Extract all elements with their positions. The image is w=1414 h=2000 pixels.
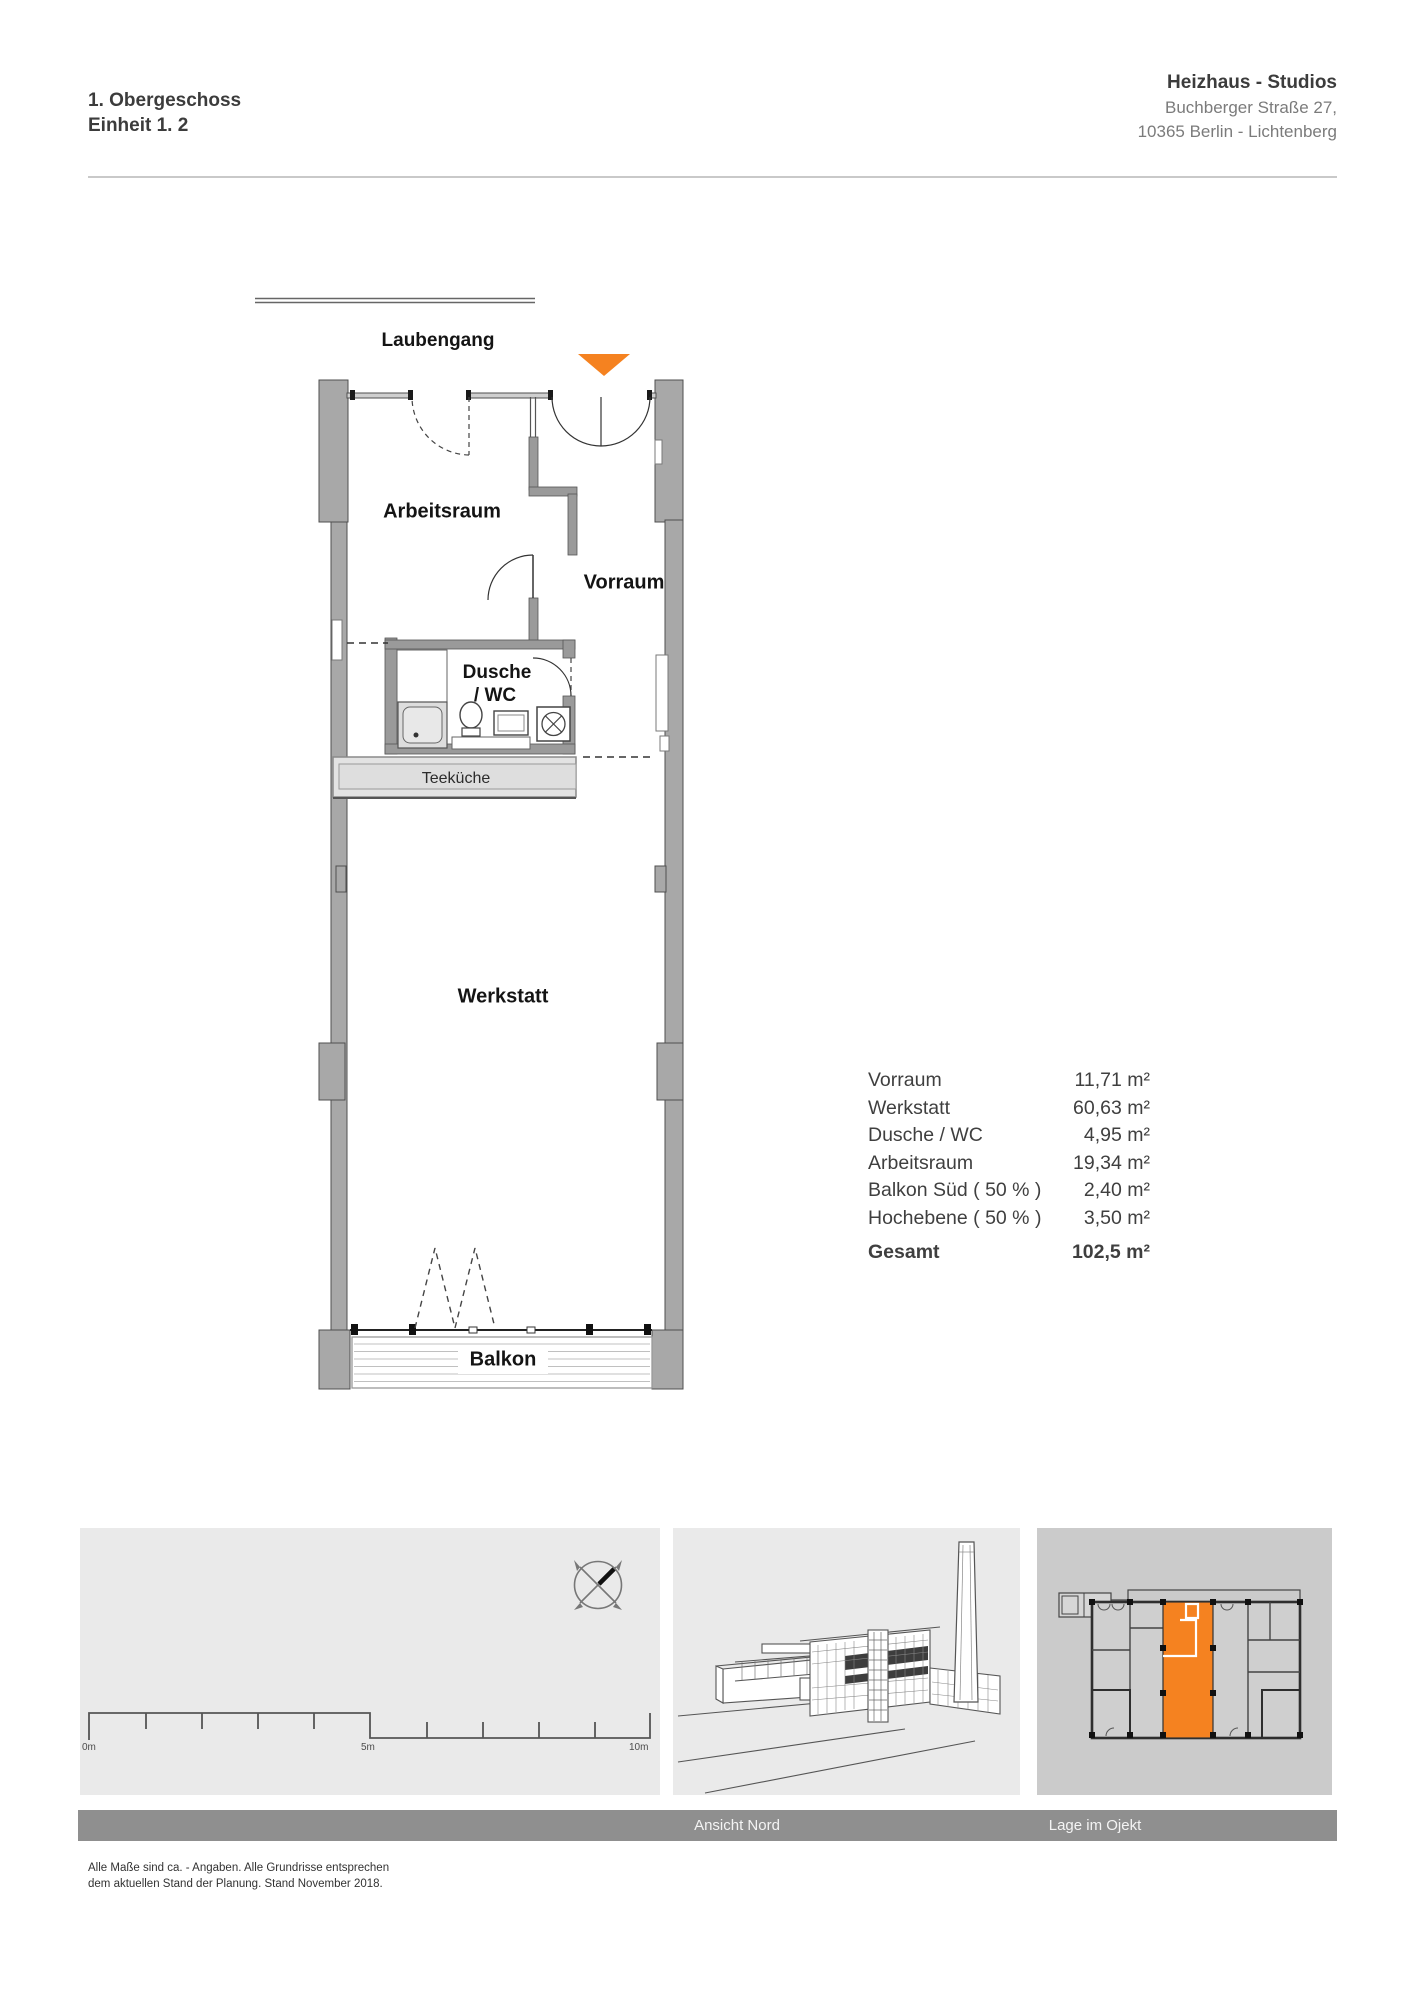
floor-label: 1. Obergeschoss <box>88 88 241 113</box>
header-divider <box>88 176 1337 178</box>
room-label-vorraum: Vorraum <box>584 572 665 595</box>
glazed-wall <box>350 1324 652 1335</box>
area-label: Werkstatt <box>868 1095 950 1123</box>
shower-icon <box>397 650 447 748</box>
scale-label-5m: 5m <box>361 1742 375 1753</box>
area-label: Hochebene ( 50 % ) <box>868 1205 1041 1233</box>
area-table: Vorraum 11,71 m² Werkstatt 60,63 m² Dusc… <box>868 1067 1150 1266</box>
room-label-dusche: Dusche <box>463 662 532 684</box>
vorraum-door <box>488 555 533 600</box>
room-label-laubengang: Laubengang <box>382 330 495 352</box>
area-row: Dusche / WC 4,95 m² <box>868 1122 1150 1150</box>
outer-walls <box>319 380 683 1389</box>
area-row: Arbeitsraum 19,34 m² <box>868 1150 1150 1178</box>
area-value: 3,50 m² <box>1084 1205 1150 1233</box>
panel-scale-compass <box>80 1528 660 1795</box>
address-street: Buchberger Straße 27, <box>1138 96 1337 120</box>
unit-label: Einheit 1. 2 <box>88 113 241 138</box>
sheet-title: 1. Obergeschoss Einheit 1. 2 <box>88 88 241 138</box>
area-value: 60,63 m² <box>1073 1095 1150 1123</box>
floorplan-sheet: 1. Obergeschoss Einheit 1. 2 Heizhaus - … <box>0 0 1414 2000</box>
area-value: 4,95 m² <box>1084 1122 1150 1150</box>
caption-band: Ansicht Nord Lage im Ojekt <box>78 1810 1337 1841</box>
dashed-door <box>412 397 469 455</box>
area-label: Vorraum <box>868 1067 942 1095</box>
area-row: Hochebene ( 50 % ) 3,50 m² <box>868 1205 1150 1233</box>
area-label: Balkon Süd ( 50 % ) <box>868 1177 1041 1205</box>
address-city: 10365 Berlin - Lichtenberg <box>1138 120 1337 144</box>
project-name: Heizhaus - Studios <box>1138 70 1337 96</box>
area-value: 2,40 m² <box>1084 1177 1150 1205</box>
room-label-teekueche: Teeküche <box>422 770 491 788</box>
room-label-wc: / WC <box>474 685 516 707</box>
door-posts <box>350 390 652 400</box>
partition-window <box>531 397 536 437</box>
bathroom-counter <box>452 737 530 749</box>
area-total-value: 102,5 m² <box>1072 1239 1150 1267</box>
panel-location-plan <box>1037 1528 1332 1795</box>
scale-label-10m: 10m <box>629 1742 648 1753</box>
toilet-icon <box>460 702 482 736</box>
footer-note-line1: Alle Maße sind ca. - Angaben. Alle Grund… <box>88 1860 389 1876</box>
entrance-arrow-icon <box>578 354 630 376</box>
area-value: 19,34 m² <box>1073 1150 1150 1178</box>
sink-icon <box>494 711 528 735</box>
area-value: 11,71 m² <box>1074 1067 1150 1095</box>
area-row: Werkstatt 60,63 m² <box>868 1095 1150 1123</box>
bathroom-door <box>533 658 571 696</box>
area-total-row: Gesamt 102,5 m² <box>868 1239 1150 1267</box>
area-row: Balkon Süd ( 50 % ) 2,40 m² <box>868 1177 1150 1205</box>
project-address: Heizhaus - Studios Buchberger Straße 27,… <box>1138 70 1337 144</box>
room-label-balkon: Balkon <box>470 1349 537 1372</box>
folding-door <box>415 1248 495 1328</box>
partition-walls <box>529 437 577 648</box>
entrance-door <box>552 397 650 446</box>
caption-ansicht-nord: Ansicht Nord <box>694 1810 780 1841</box>
room-label-arbeitsraum: Arbeitsraum <box>383 501 501 524</box>
caption-lage-im-objekt: Lage im Ojekt <box>1049 1810 1142 1841</box>
area-label: Dusche / WC <box>868 1122 983 1150</box>
area-label: Arbeitsraum <box>868 1150 973 1178</box>
scale-label-0m: 0m <box>82 1742 96 1753</box>
panel-north-view <box>673 1528 1020 1795</box>
footer-note-line2: dem aktuellen Stand der Planung. Stand N… <box>88 1876 383 1892</box>
room-label-werkstatt: Werkstatt <box>458 986 549 1009</box>
walkway-lines <box>255 299 535 303</box>
area-row: Vorraum 11,71 m² <box>868 1067 1150 1095</box>
washing-machine-icon <box>537 707 570 741</box>
area-total-label: Gesamt <box>868 1239 940 1267</box>
